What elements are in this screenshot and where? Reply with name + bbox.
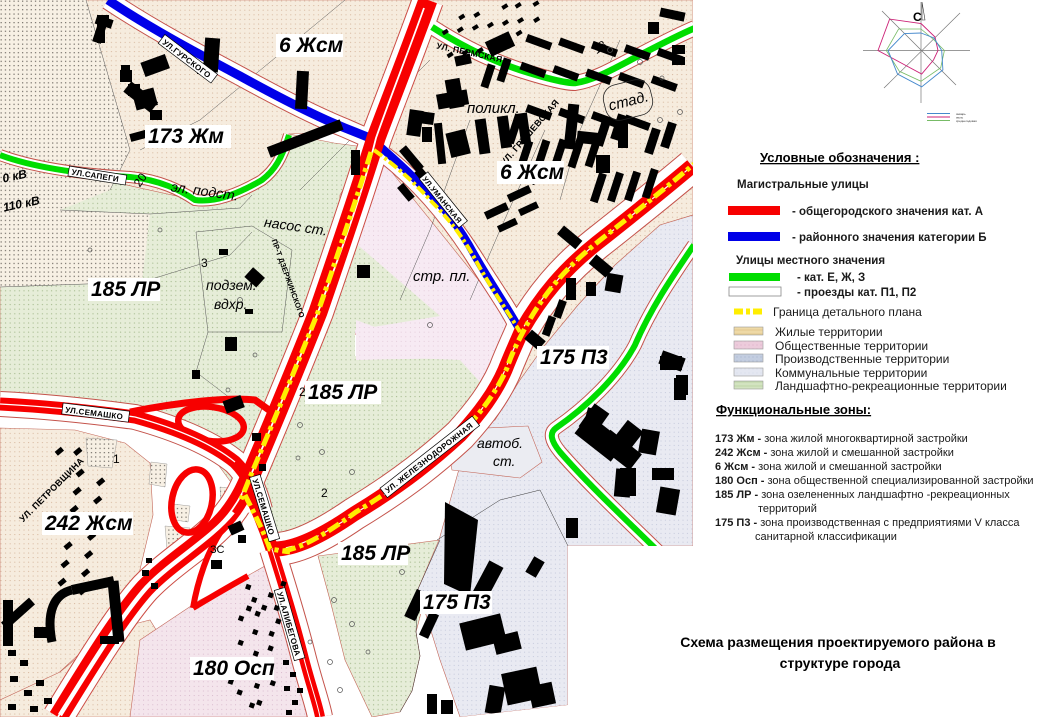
svg-text:2: 2: [299, 385, 306, 399]
svg-text:185 ЛР - зона озелененных лан: 185 ЛР - зона озелененных ландшафтно -ре…: [715, 489, 1010, 501]
svg-text:Условные обозначения :: Условные обозначения :: [760, 150, 919, 165]
svg-text:- кат. Е, Ж, З: - кат. Е, Ж, З: [797, 272, 865, 284]
svg-text:Магистральные улицы: Магистральные улицы: [737, 179, 869, 191]
svg-text:180 Осп - зона общественной сп: 180 Осп - зона общественной специализиро…: [715, 475, 1034, 487]
svg-text:- районного значения категории: - районного значения категории Б: [792, 232, 987, 244]
svg-text:6 Жсм - зона жилой и смешанной: 6 Жсм - зона жилой и смешанной застройки: [715, 461, 942, 473]
svg-text:территорий: территорий: [758, 503, 817, 515]
svg-text:автоб.: автоб.: [477, 435, 523, 451]
svg-text:185 ЛР: 185 ЛР: [341, 542, 411, 565]
svg-text:вдхр.: вдхр.: [214, 296, 247, 312]
svg-text:ЗС: ЗС: [210, 544, 225, 556]
svg-text:185 ЛР: 185 ЛР: [91, 278, 161, 301]
svg-text:стр. пл.: стр. пл.: [413, 268, 470, 285]
svg-text:180 Осп: 180 Осп: [193, 657, 275, 680]
svg-text:подзем.: подзем.: [206, 277, 257, 293]
svg-text:Производственные территории: Производственные территории: [775, 352, 949, 366]
svg-text:175 П3: 175 П3: [540, 346, 608, 369]
svg-text:Ландшафтно-рекреационные терри: Ландшафтно-рекреационные территории: [775, 379, 1007, 393]
svg-text:242 Жсм - зона жилой и смешанн: 242 Жсм - зона жилой и смешанной застрой…: [715, 447, 954, 459]
svg-text:Жилые территории: Жилые территории: [775, 325, 883, 339]
svg-text:185 ЛР: 185 ЛР: [308, 381, 378, 404]
svg-text:- общегородского значения кат.: - общегородского значения кат. А: [792, 206, 983, 218]
svg-text:242 Жсм: 242 Жсм: [44, 512, 133, 535]
svg-text:поликл.: поликл.: [467, 100, 520, 117]
svg-text:Улицы местного значения: Улицы местного значения: [736, 255, 885, 267]
svg-text:Схема размещения проектируемог: Схема размещения проектируемого района в: [680, 634, 996, 650]
svg-text:санитарной классификации: санитарной классификации: [755, 531, 897, 543]
svg-text:173 Жм - зона жилой многоквар: 173 Жм - зона жилой многоквартирной заст…: [715, 433, 968, 445]
svg-text:1: 1: [113, 452, 120, 466]
svg-text:6 Жсм: 6 Жсм: [500, 161, 565, 184]
svg-text:175 П3 - зона производственная: 175 П3 - зона производственная с предпри…: [715, 517, 1020, 529]
svg-text:С: С: [913, 10, 922, 24]
svg-text:2: 2: [321, 486, 328, 500]
svg-text:Граница детального плана: Граница детального плана: [773, 305, 922, 319]
svg-text:структуре города: структуре города: [780, 655, 901, 671]
svg-text:среднегодовая: среднегодовая: [956, 119, 977, 123]
svg-text:175 П3: 175 П3: [423, 591, 491, 614]
svg-text:6 Жсм: 6 Жсм: [279, 34, 344, 57]
svg-text:- проезды кат. П1, П2: - проезды кат. П1, П2: [797, 287, 916, 299]
svg-text:173 Жм: 173 Жм: [148, 125, 224, 148]
svg-text:3: 3: [201, 256, 208, 270]
svg-text:Общественные территории: Общественные территории: [775, 339, 928, 353]
svg-text:Функциональные зоны:: Функциональные зоны:: [716, 402, 871, 417]
svg-text:ст.: ст.: [493, 453, 515, 469]
svg-text:Коммунальные территории: Коммунальные территории: [775, 366, 927, 380]
